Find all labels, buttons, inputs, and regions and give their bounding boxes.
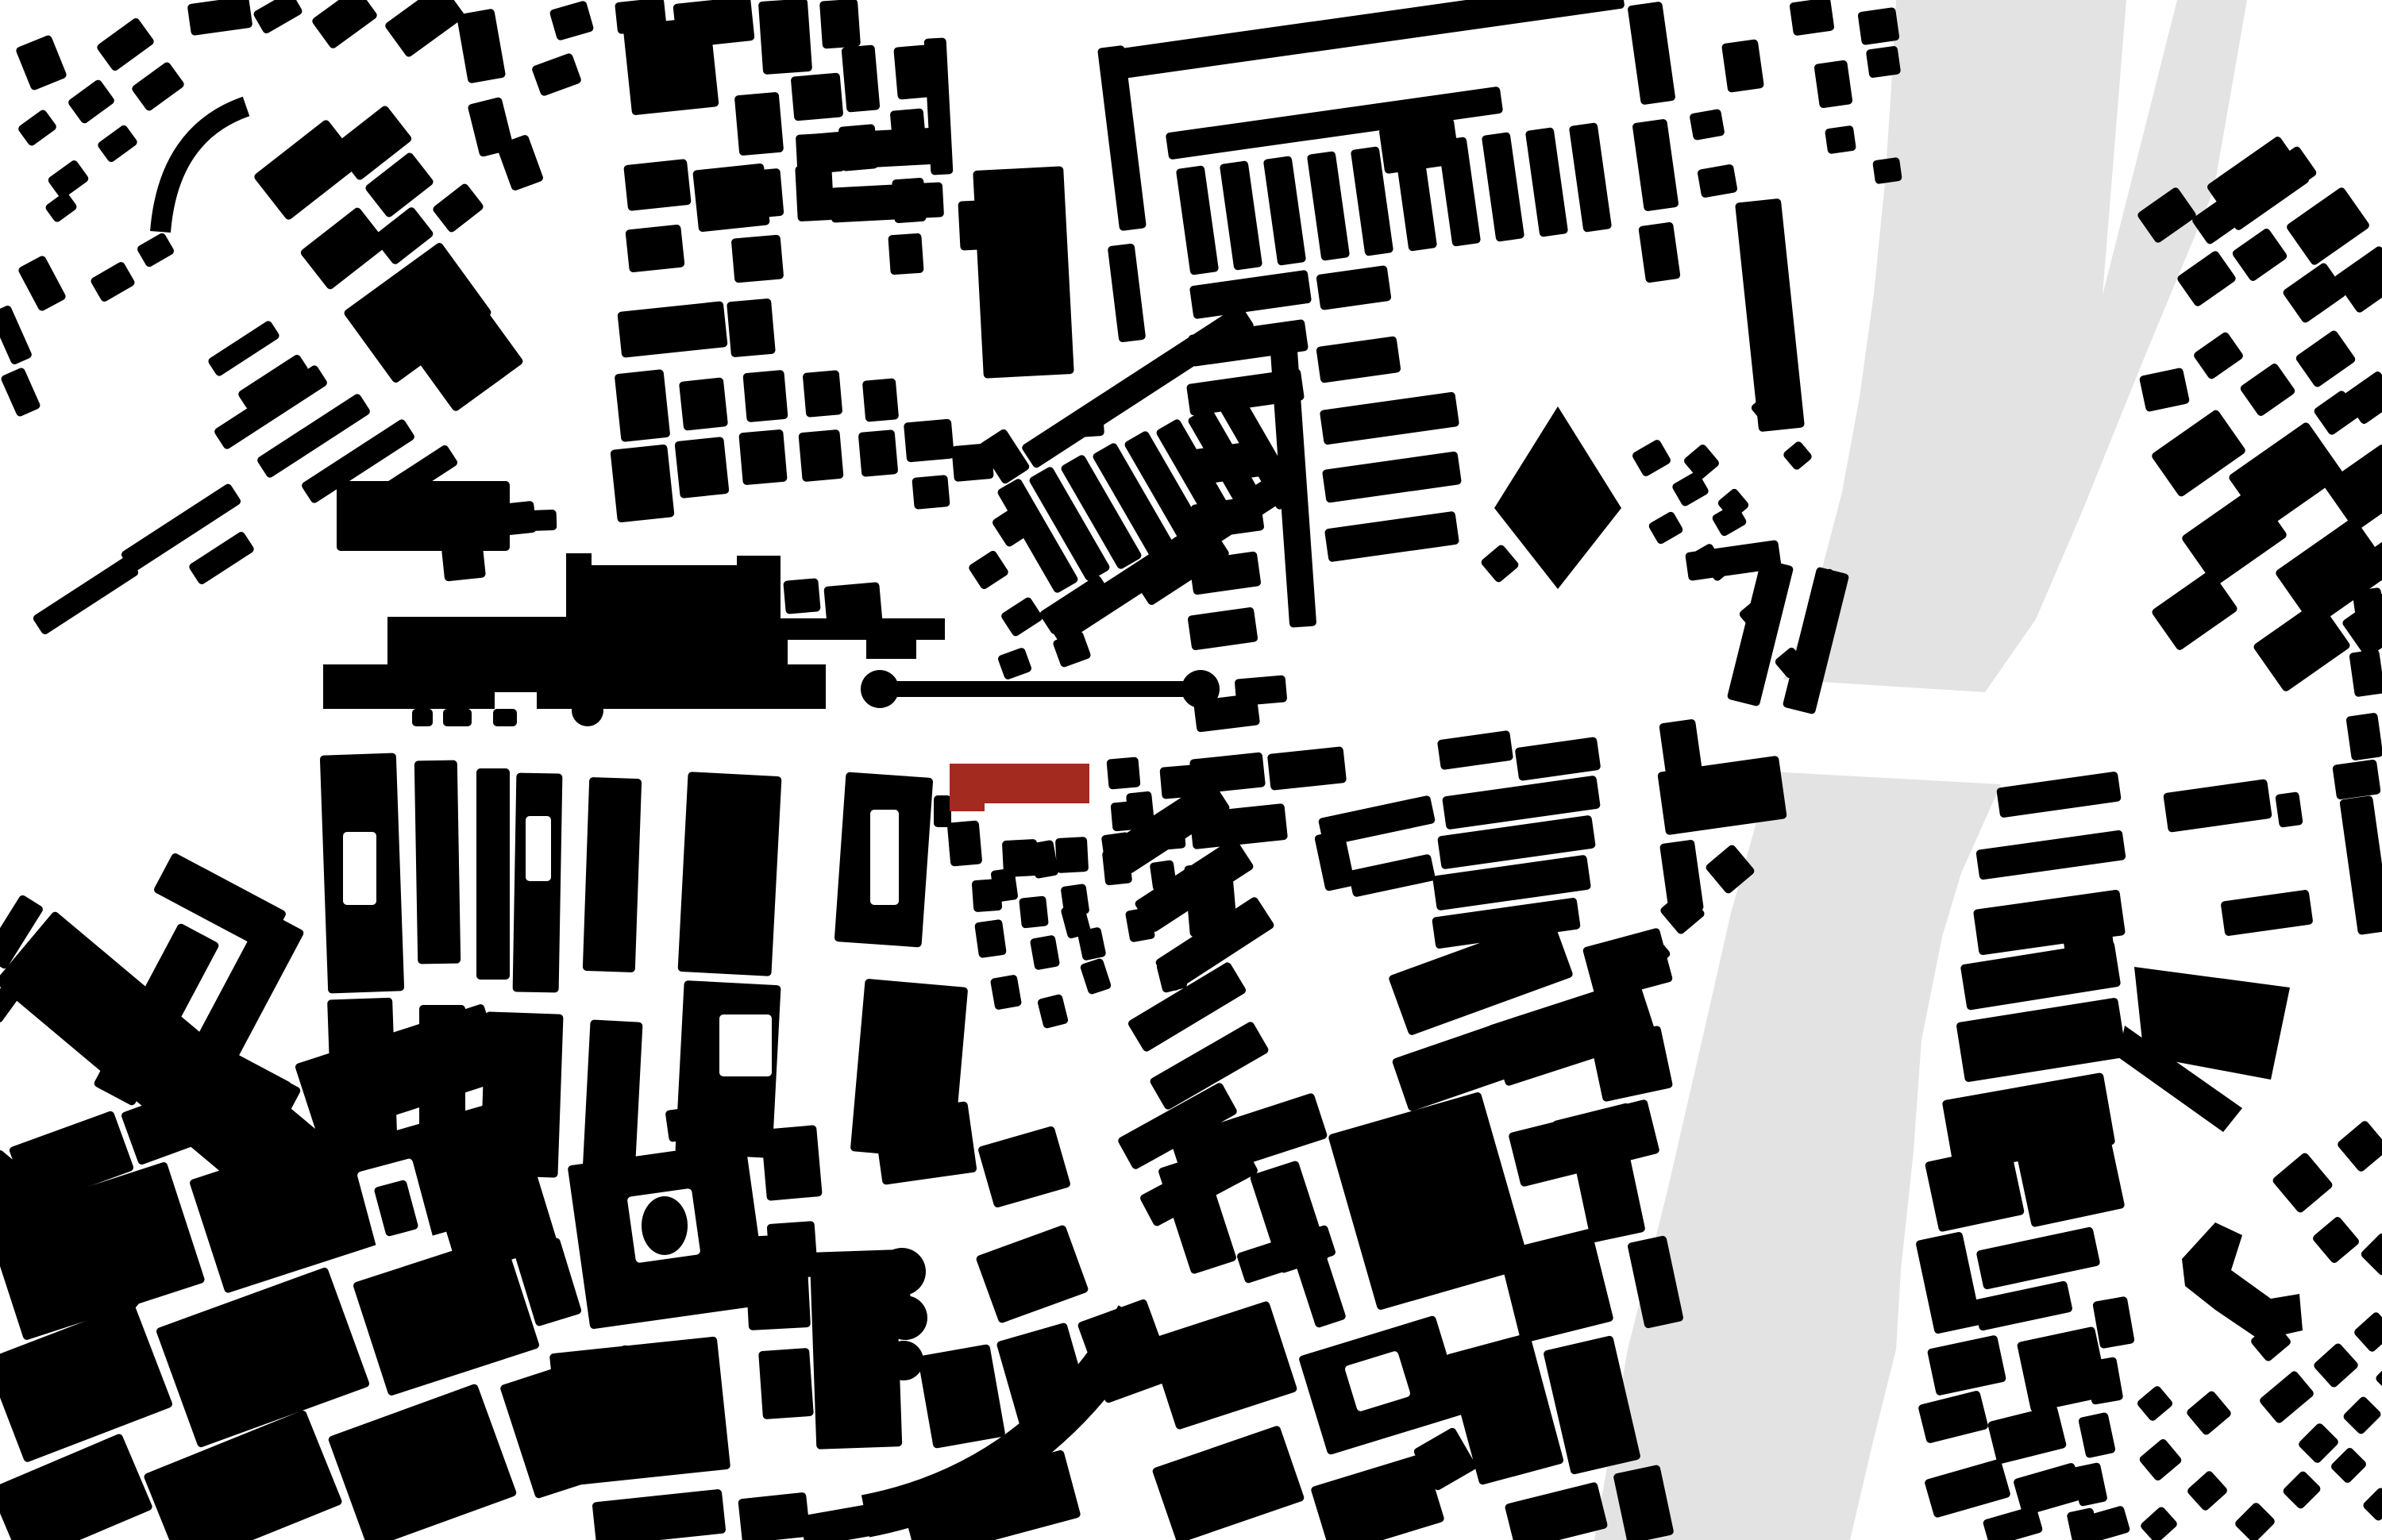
- building: [156, 1266, 371, 1448]
- building: [958, 200, 982, 250]
- building: [1505, 1481, 1609, 1540]
- building: [2092, 1296, 2135, 1349]
- building: [2186, 1469, 2229, 1512]
- round-building-bump: [883, 1296, 927, 1340]
- building: [842, 44, 881, 112]
- building: [95, 17, 155, 72]
- building: [2311, 1215, 2361, 1265]
- building: [2231, 227, 2288, 283]
- platform-axis-dash: [1235, 675, 1288, 706]
- building: [1307, 151, 1350, 261]
- building: [2342, 1396, 2382, 1436]
- building: [1956, 997, 2126, 1082]
- building: [1037, 994, 1069, 1030]
- building: [2078, 1412, 2116, 1459]
- building: [327, 1383, 517, 1540]
- building: [1915, 1231, 1982, 1334]
- building: [2353, 1311, 2382, 1353]
- building: [1220, 160, 1262, 271]
- building: [96, 124, 138, 164]
- building: [1438, 137, 1481, 247]
- building: [862, 378, 899, 422]
- building: [974, 919, 1007, 958]
- building: [1983, 1505, 2044, 1540]
- building: [1857, 7, 1899, 45]
- building: [795, 164, 834, 221]
- courtyard: [719, 1014, 772, 1076]
- building: [1106, 757, 1140, 789]
- building: [2138, 1438, 2183, 1482]
- building: [975, 1224, 1089, 1324]
- building: [1996, 771, 2122, 818]
- building: [1924, 1458, 2011, 1519]
- building: [1927, 1334, 2007, 1396]
- building: [1918, 1390, 1989, 1444]
- building: [2361, 1486, 2382, 1522]
- building: [0, 367, 41, 418]
- building: [17, 255, 67, 313]
- building: [1648, 510, 1684, 545]
- building: [1151, 1425, 1305, 1540]
- building: [2295, 329, 2357, 389]
- building: [2163, 779, 2272, 833]
- round-building-bump: [884, 1341, 923, 1380]
- building: [592, 1489, 727, 1540]
- building: [431, 183, 484, 234]
- station-annex: [443, 709, 472, 726]
- building: [1147, 1300, 1297, 1430]
- building: [2282, 1470, 2322, 1511]
- building: [912, 475, 950, 510]
- building: [1030, 935, 1060, 971]
- figure-ground-svg: [0, 0, 2382, 1540]
- building: [1348, 853, 1436, 897]
- building: [252, 118, 361, 221]
- building: [2136, 1384, 2174, 1423]
- building: [798, 429, 843, 482]
- building: [610, 444, 674, 522]
- building: [67, 79, 116, 125]
- building: [441, 544, 486, 581]
- highlighted-site-building: [950, 764, 1089, 811]
- building: [1019, 895, 1049, 928]
- building: [858, 429, 899, 477]
- building: [742, 370, 788, 422]
- building: [252, 0, 303, 35]
- building: [1515, 737, 1601, 781]
- building: [2349, 649, 2382, 698]
- building: [2272, 1152, 2334, 1215]
- building: [1631, 438, 1672, 477]
- building: [1080, 957, 1112, 995]
- circular-courtyard-building: [642, 1196, 688, 1255]
- building: [0, 304, 33, 365]
- building: [1782, 440, 1813, 471]
- building: [734, 92, 784, 156]
- building: [1789, 0, 1834, 36]
- building: [207, 319, 281, 377]
- building: [44, 191, 79, 223]
- building: [1320, 391, 1459, 445]
- building: [1310, 1453, 1445, 1540]
- station-annex: [493, 709, 517, 726]
- courtyard: [343, 832, 376, 905]
- curved-building: [160, 106, 246, 232]
- building: [130, 61, 185, 113]
- building: [1316, 336, 1401, 383]
- building: [136, 232, 175, 268]
- building: [90, 260, 137, 302]
- building: [783, 578, 820, 614]
- building: [973, 166, 1074, 379]
- building: [617, 301, 727, 358]
- building: [2345, 712, 2382, 760]
- building: [1055, 837, 1089, 873]
- building: [2360, 1232, 2382, 1277]
- building: [1813, 60, 1852, 108]
- building: [803, 370, 843, 418]
- building: [934, 795, 951, 827]
- station-footprint: [323, 553, 945, 709]
- building: [1925, 1145, 2025, 1233]
- building: [299, 206, 388, 291]
- building: [625, 224, 684, 272]
- building: [819, 0, 861, 49]
- building: [2253, 599, 2352, 692]
- building: [1525, 127, 1568, 237]
- building: [1328, 1091, 1531, 1311]
- building: [1391, 1023, 1514, 1112]
- building: [2333, 244, 2382, 314]
- building: [2185, 1390, 2232, 1437]
- building: [1682, 443, 1721, 481]
- building: [738, 168, 784, 219]
- building: [1987, 1405, 2068, 1465]
- building: [1638, 221, 1681, 283]
- building: [2285, 186, 2371, 266]
- building: [1324, 511, 1459, 563]
- building: [947, 820, 983, 866]
- building: [1187, 606, 1258, 650]
- building: [1872, 157, 1902, 184]
- building: [1866, 45, 1902, 78]
- building: [2339, 795, 2382, 935]
- building: [727, 298, 776, 358]
- building: [679, 377, 728, 431]
- building: [665, 1104, 717, 1142]
- building: [622, 17, 719, 116]
- building: [1482, 132, 1524, 242]
- building: [583, 777, 642, 972]
- building: [310, 0, 378, 50]
- building: [1263, 156, 1306, 266]
- building: [2139, 1505, 2179, 1540]
- building: [1689, 109, 1725, 141]
- building: [758, 0, 812, 75]
- building: [904, 418, 954, 462]
- river-upper-reach: [1783, 0, 2247, 692]
- round-building-bump: [878, 1248, 926, 1296]
- building: [2139, 368, 2190, 413]
- building: [2297, 1422, 2340, 1465]
- building: [513, 773, 563, 993]
- building: [2151, 569, 2239, 652]
- building: [1632, 118, 1679, 211]
- building: [888, 233, 923, 275]
- building: [677, 772, 781, 976]
- building: [791, 72, 844, 121]
- courtyard: [526, 816, 551, 881]
- building: [531, 52, 582, 97]
- platform-axis-dot-east: [1181, 670, 1220, 708]
- building: [1627, 2, 1675, 106]
- building: [1176, 165, 1219, 275]
- building: [187, 530, 255, 586]
- building: [623, 159, 692, 211]
- site-building-red: [950, 764, 1089, 811]
- building: [1582, 927, 1674, 1001]
- building: [47, 159, 90, 200]
- building: [731, 234, 784, 283]
- building: [1189, 270, 1312, 319]
- building: [15, 34, 67, 91]
- building: [2282, 262, 2348, 325]
- building: [2275, 791, 2303, 828]
- building: [1267, 746, 1347, 791]
- building: [2150, 409, 2246, 499]
- building: [32, 555, 140, 636]
- building: [1975, 1226, 2100, 1290]
- building: [674, 437, 729, 499]
- building: [17, 109, 58, 148]
- building: [414, 760, 461, 964]
- building: [1480, 544, 1521, 584]
- building: [758, 1348, 814, 1419]
- building: [2066, 1507, 2099, 1540]
- building: [2330, 1446, 2368, 1484]
- building: [1322, 451, 1462, 503]
- courtyard: [870, 810, 899, 905]
- building: [1721, 39, 1764, 93]
- building: [738, 429, 788, 486]
- building-polygon: [2182, 1222, 2303, 1340]
- building: [1825, 125, 1856, 155]
- building: [549, 0, 594, 41]
- building: [997, 647, 1033, 680]
- building: [1000, 596, 1043, 637]
- building: [990, 974, 1022, 1010]
- building: [1697, 164, 1738, 198]
- building: [977, 1126, 1071, 1208]
- building: [967, 549, 1009, 591]
- building: [2374, 1359, 2382, 1395]
- building: [796, 127, 944, 171]
- building: [1437, 730, 1513, 770]
- building: [2220, 889, 2313, 936]
- building: [2312, 1342, 2359, 1388]
- building: [615, 369, 671, 442]
- building: [1975, 830, 2126, 880]
- building: [1727, 559, 1794, 707]
- building: [2239, 362, 2296, 418]
- building: [2258, 1369, 2315, 1424]
- building: [873, 1101, 977, 1185]
- building: [549, 1336, 730, 1486]
- platform-axis-dot-west: [861, 670, 899, 708]
- building: [1735, 198, 1805, 432]
- station-apse: [572, 695, 603, 726]
- figure-ground-map: [0, 0, 2382, 1540]
- building: [1289, 1236, 1347, 1329]
- building: [2332, 759, 2381, 799]
- building: [2234, 1501, 2276, 1540]
- building: [1106, 0, 1625, 80]
- building: [384, 0, 465, 58]
- building: [2336, 1119, 2382, 1173]
- building: [738, 1492, 810, 1540]
- building: [1316, 265, 1391, 310]
- building: [1108, 243, 1147, 342]
- building: [476, 768, 510, 980]
- building: [990, 868, 1018, 903]
- building: [917, 1344, 1005, 1449]
- building: [830, 182, 944, 222]
- building: [187, 0, 253, 36]
- building: [457, 9, 507, 84]
- building: [1569, 122, 1612, 233]
- station-annex: [412, 709, 433, 726]
- building: [892, 178, 927, 224]
- building: [2192, 331, 2245, 381]
- building: [761, 1125, 823, 1201]
